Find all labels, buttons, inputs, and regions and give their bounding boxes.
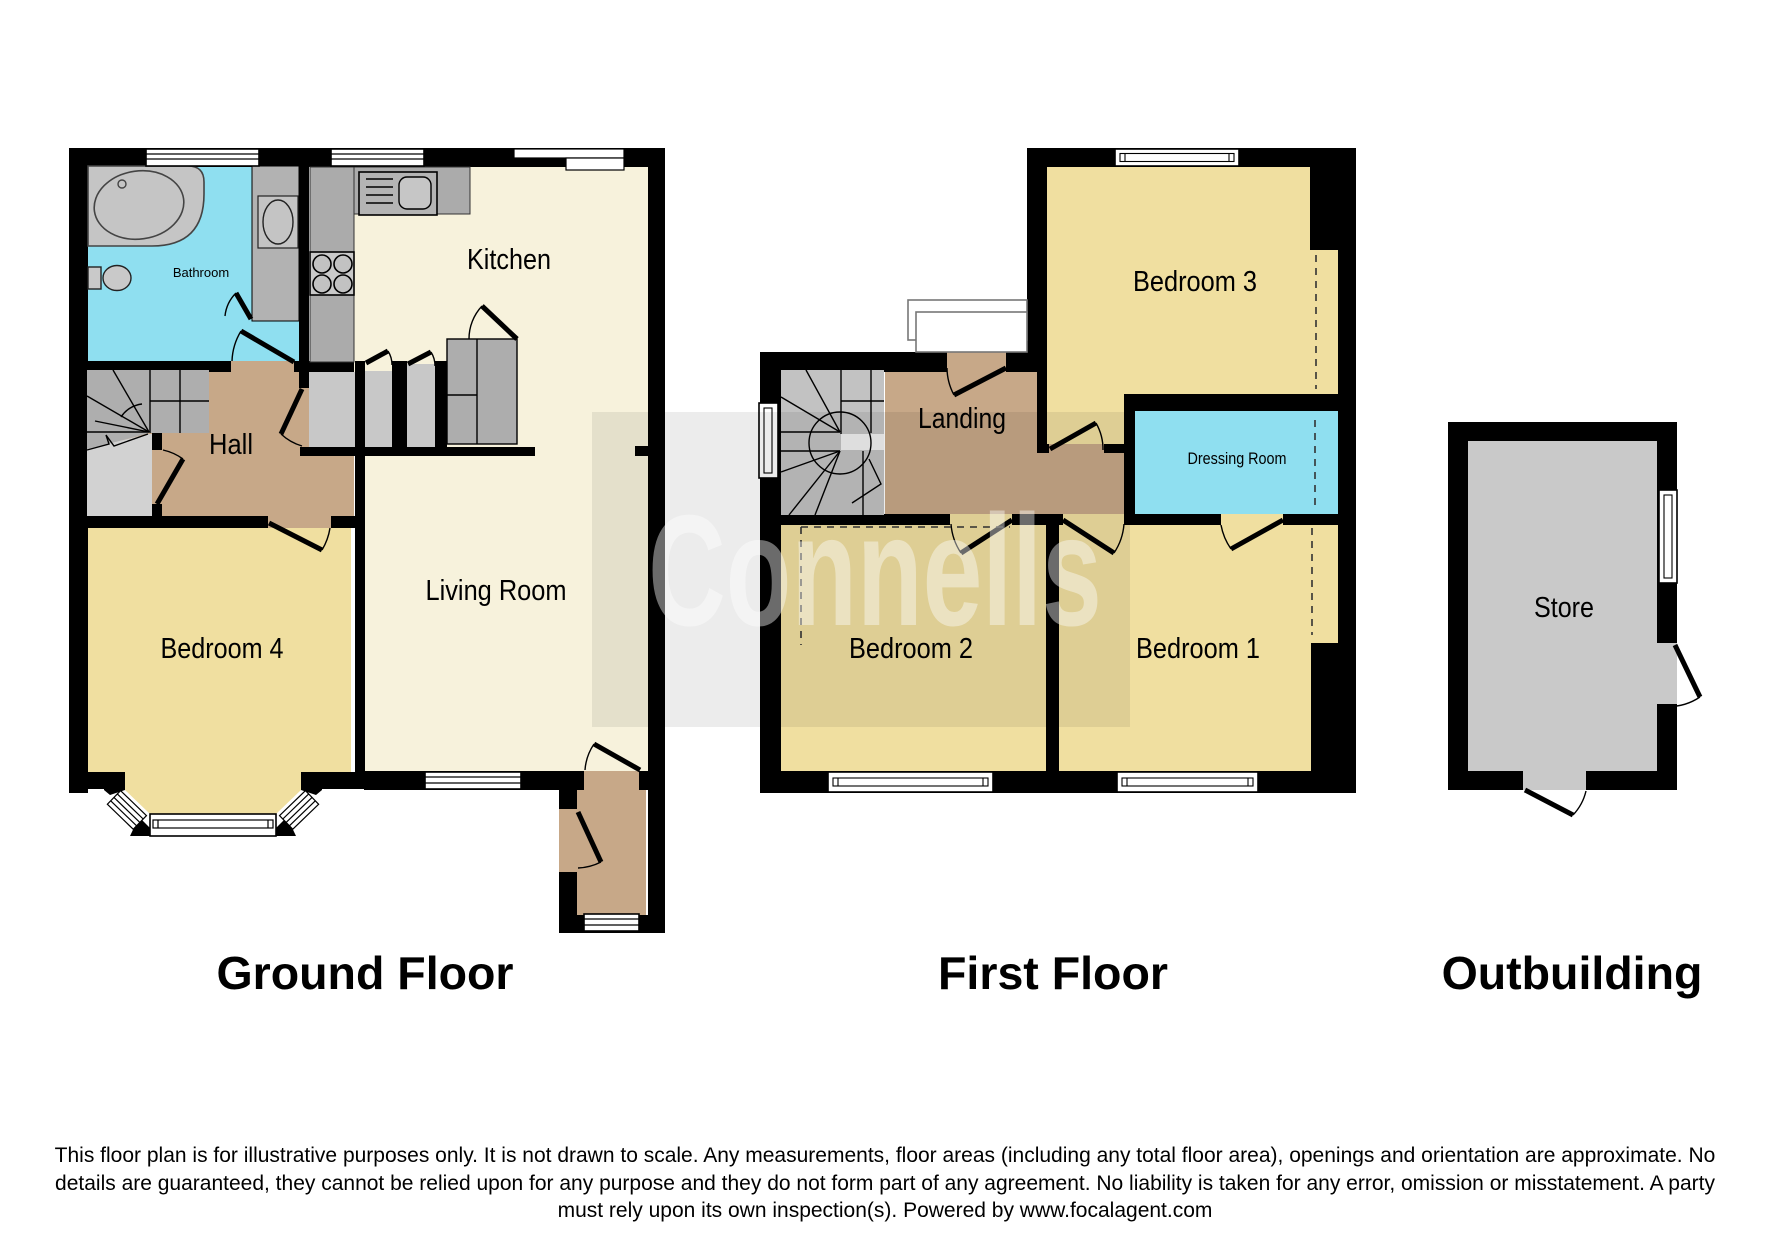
svg-text:details are guaranteed, they c: details are guaranteed, they cannot be r…	[55, 1172, 1715, 1195]
svg-text:Kitchen: Kitchen	[467, 244, 551, 276]
svg-text:Connells: Connells	[648, 482, 1102, 659]
svg-text:Bedroom 1: Bedroom 1	[1136, 633, 1260, 665]
svg-text:Dressing Room: Dressing Room	[1188, 449, 1287, 468]
svg-text:Store: Store	[1534, 592, 1594, 624]
svg-text:This floor plan is for illustr: This floor plan is for illustrative purp…	[55, 1144, 1716, 1167]
svg-text:Bedroom 4: Bedroom 4	[161, 633, 284, 665]
svg-text:Hall: Hall	[209, 429, 253, 461]
svg-text:Living Room: Living Room	[426, 575, 567, 607]
svg-text:Bathroom: Bathroom	[173, 265, 229, 280]
svg-text:Bedroom 3: Bedroom 3	[1133, 266, 1257, 298]
svg-text:must rely upon its own inspect: must rely upon its own inspection(s). Po…	[558, 1199, 1213, 1222]
svg-text:Outbuilding: Outbuilding	[1442, 947, 1703, 999]
svg-text:First Floor: First Floor	[938, 947, 1168, 999]
svg-text:Ground Floor: Ground Floor	[216, 947, 513, 999]
